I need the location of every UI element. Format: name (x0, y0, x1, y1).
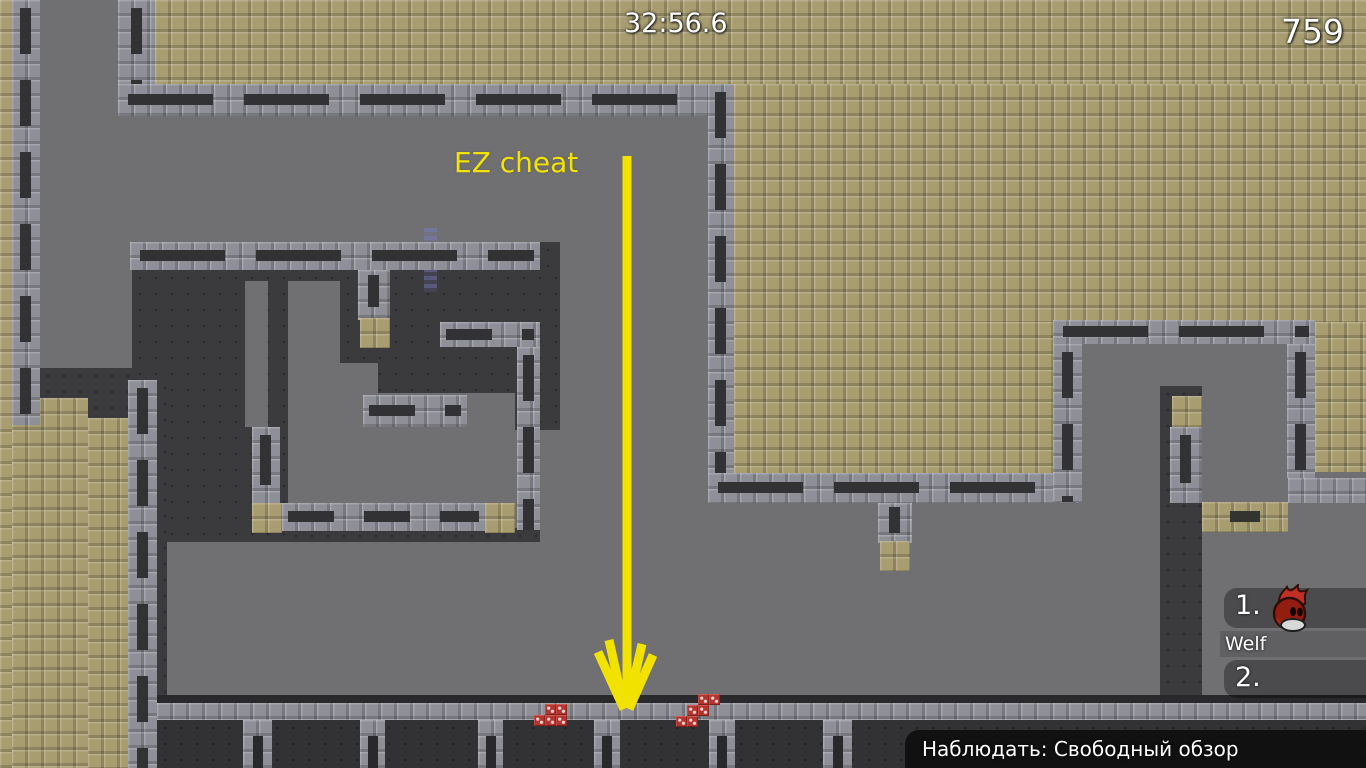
map-wallh-block (708, 473, 1082, 503)
map-wallv-block (12, 0, 40, 425)
freeze-tile (545, 715, 556, 726)
map-tan-block (12, 398, 88, 768)
map-pillar-block (594, 720, 620, 768)
player-name-label: Welf (1220, 631, 1366, 657)
map-tan-block (360, 318, 390, 348)
map-pillar-block (360, 720, 385, 768)
map-tan-block (485, 503, 515, 533)
map-tan-block (252, 503, 282, 533)
map-mid-block (340, 363, 378, 393)
map-mid-block (288, 281, 340, 393)
rank-2-label: 2. (1235, 662, 1261, 693)
map-tan-block (734, 322, 1055, 475)
cheat-annotation: EZ cheat (454, 146, 578, 179)
freeze-tile (534, 715, 545, 726)
freeze-tile (556, 715, 567, 726)
map-tanh-block (1202, 502, 1288, 532)
map-tan-block (88, 418, 128, 768)
map-mid-block (245, 281, 268, 427)
freeze-tile (556, 704, 567, 715)
map-tan-block (880, 541, 910, 571)
map-wallh2-block (363, 395, 467, 427)
map-wallh-block (118, 84, 710, 116)
map-slotv-block (252, 427, 280, 505)
map-darker-block (157, 695, 1366, 703)
map-wallh-block (1053, 320, 1315, 344)
freeze-tile (698, 694, 709, 705)
freeze-tile (676, 716, 687, 727)
spectate-mode-label: Наблюдать: Свободный обзор (922, 737, 1239, 761)
map-tan-block (1172, 396, 1202, 427)
map-slotv-block (358, 270, 390, 320)
scoreboard-row-2: 2. (1224, 660, 1366, 698)
map-pillar-block (709, 720, 735, 768)
map-pillar-block (823, 720, 852, 768)
map-slotv-block (878, 503, 912, 543)
freeze-tile (545, 704, 556, 715)
points-counter: 759 (1281, 12, 1344, 51)
map-wallh2-block (440, 322, 540, 347)
map-tan-block (1315, 322, 1366, 472)
map-wall-block (157, 703, 1366, 720)
map-wallv-block (128, 380, 157, 768)
map-wallv-block (708, 84, 734, 503)
race-timer: 32:56.6 (624, 8, 728, 39)
map-pillar-block (243, 720, 272, 768)
map-pillar-block (478, 720, 503, 768)
game-viewport[interactable]: EZ cheat 32:56.6 759 1. Welf 2. Наблюдат… (0, 0, 1366, 768)
map-wallh-block (130, 242, 540, 270)
player-character-icon (1268, 584, 1314, 632)
freeze-tile (687, 716, 698, 727)
map-tan-block (0, 0, 12, 768)
freeze-tile (698, 705, 709, 716)
map-wall-block (1288, 478, 1366, 503)
map-slotv-block (1170, 427, 1202, 503)
map-wallv-block (1287, 344, 1315, 478)
freeze-tile (687, 705, 698, 716)
spectate-status-bar: Наблюдать: Свободный обзор (905, 730, 1366, 768)
map-tan-block (734, 84, 1366, 322)
map-wallh2-block (282, 503, 485, 531)
map-wallv-block (517, 347, 540, 530)
map-tan-block (155, 0, 1366, 84)
map-wallv-block (1053, 344, 1082, 502)
map-dark-block (157, 380, 167, 695)
map-dark-block (540, 242, 560, 270)
freeze-tile (709, 694, 720, 705)
rank-1-label: 1. (1235, 590, 1261, 621)
